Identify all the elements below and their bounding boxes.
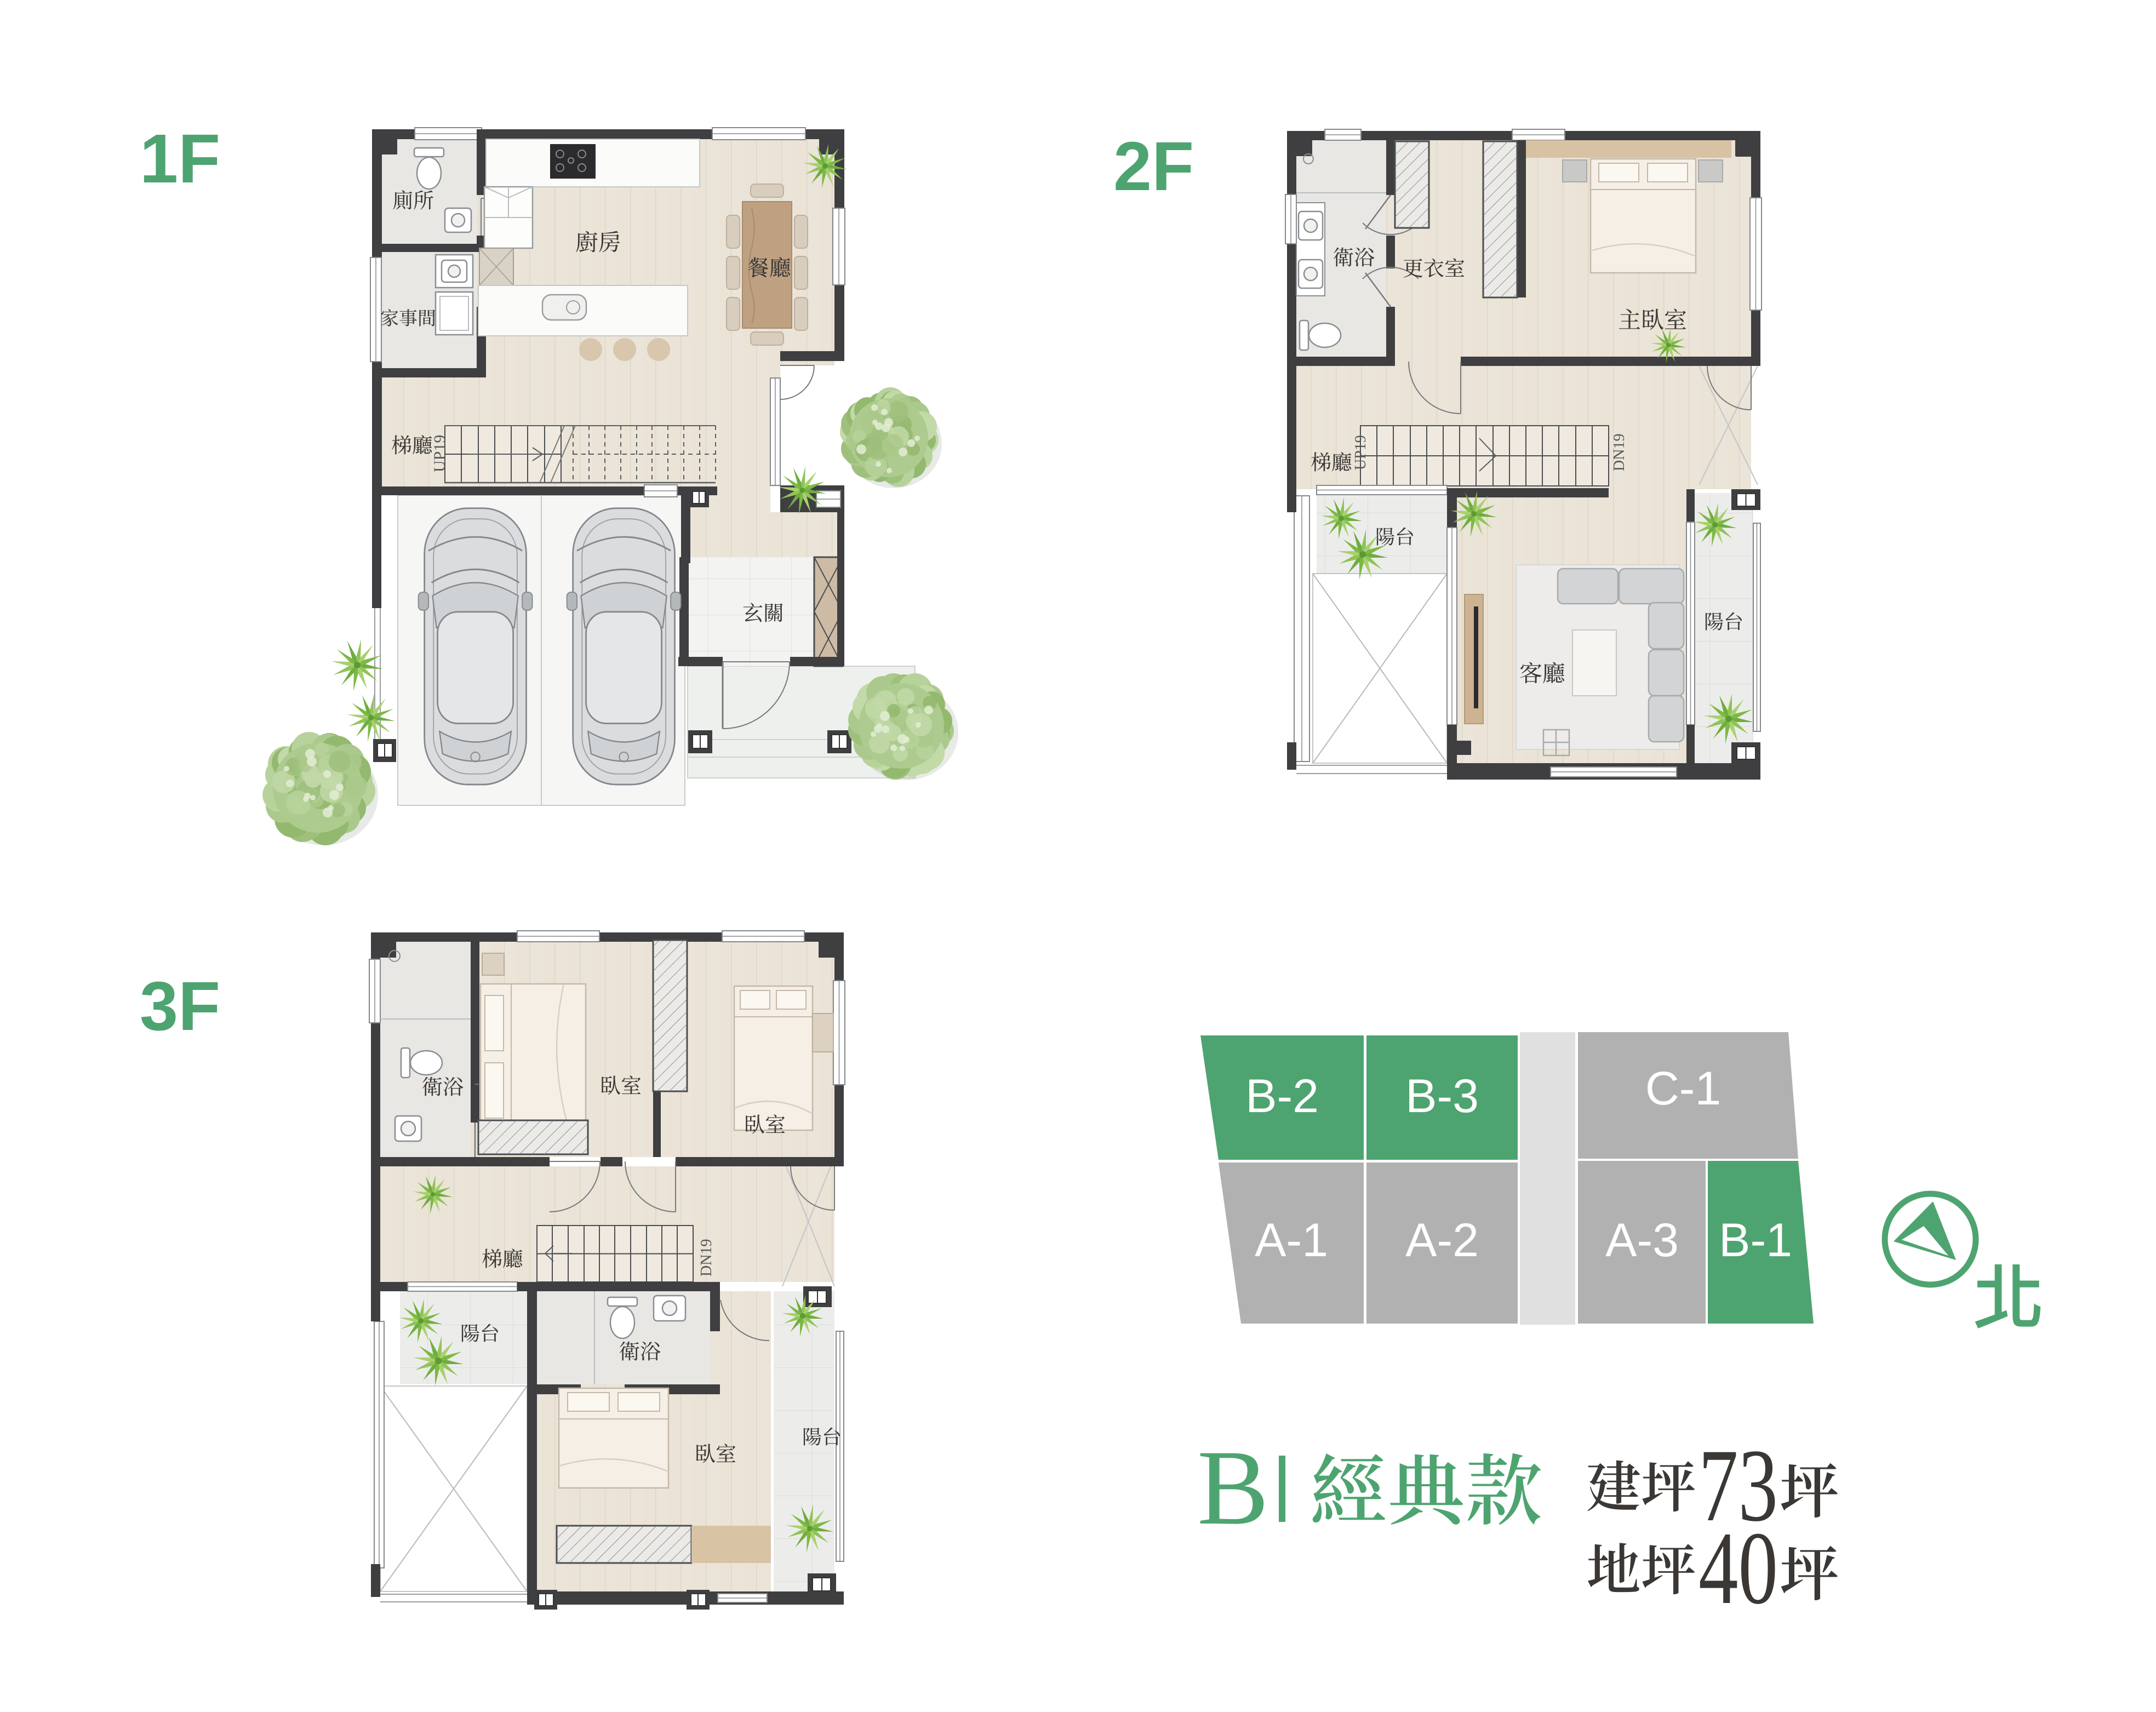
svg-text:B: B [1197, 1428, 1269, 1547]
svg-text:B-2: B-2 [1245, 1070, 1319, 1123]
svg-text:B-1: B-1 [1719, 1214, 1792, 1267]
svg-text:DN19: DN19 [698, 1239, 715, 1276]
svg-text:B-3: B-3 [1405, 1070, 1479, 1123]
svg-text:40: 40 [1699, 1511, 1778, 1626]
svg-text:A-3: A-3 [1605, 1214, 1679, 1267]
svg-text:UP19: UP19 [1352, 435, 1369, 470]
svg-text:A-1: A-1 [1255, 1214, 1328, 1267]
svg-text:C-1: C-1 [1645, 1062, 1722, 1115]
svg-text:A-2: A-2 [1405, 1214, 1479, 1267]
svg-text:DN19: DN19 [1611, 434, 1628, 471]
svg-text:UP19: UP19 [431, 435, 449, 472]
svg-text:2F: 2F [1113, 128, 1194, 205]
svg-text:1F: 1F [140, 120, 220, 197]
svg-text:3F: 3F [140, 967, 220, 1045]
